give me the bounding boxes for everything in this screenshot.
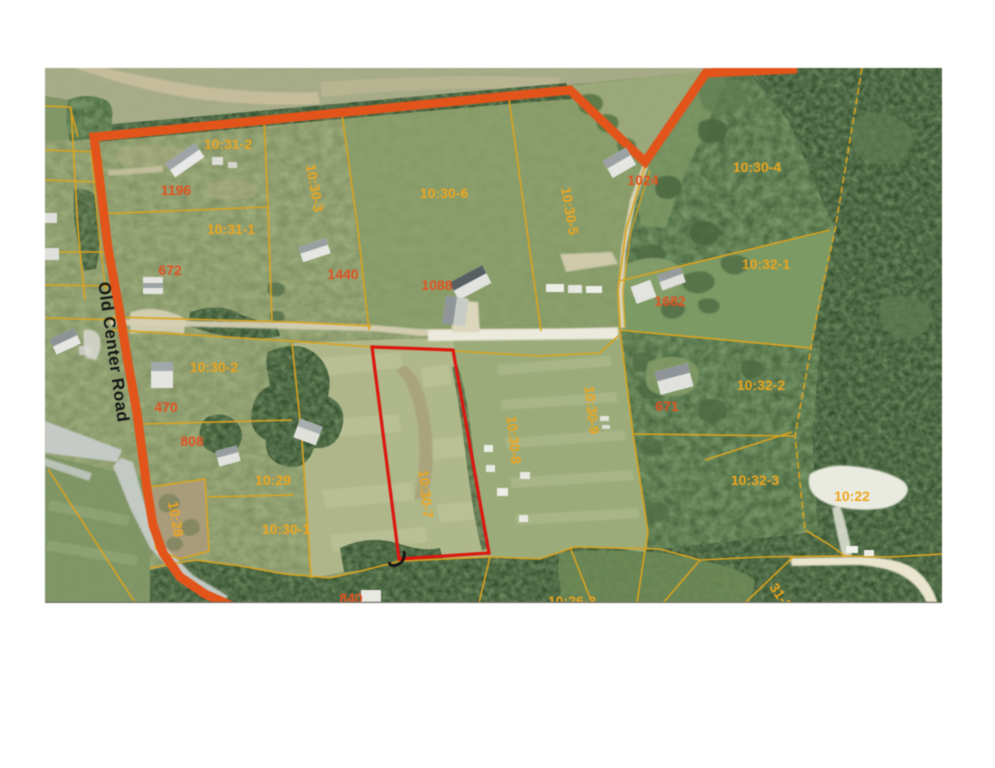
svg-text:10:29: 10:29	[255, 472, 291, 488]
svg-text:10:32-1: 10:32-1	[742, 256, 790, 272]
svg-text:672: 672	[158, 262, 182, 278]
svg-text:1088: 1088	[421, 277, 452, 293]
svg-text:1682: 1682	[654, 293, 685, 309]
svg-text:10:30-2: 10:30-2	[190, 359, 238, 375]
svg-text:10:31-2: 10:31-2	[204, 136, 252, 152]
svg-text:10:32-3: 10:32-3	[731, 472, 779, 488]
svg-text:1196: 1196	[161, 182, 192, 198]
svg-text:10:30-6: 10:30-6	[420, 185, 468, 201]
svg-text:470: 470	[154, 399, 178, 415]
svg-text:10:30-1: 10:30-1	[262, 521, 310, 537]
svg-text:10:32-2: 10:32-2	[737, 377, 785, 393]
svg-text:1440: 1440	[327, 266, 358, 282]
svg-text:808: 808	[180, 433, 204, 449]
svg-text:10:22: 10:22	[834, 488, 870, 504]
svg-text:671: 671	[655, 398, 679, 414]
svg-text:10:31-1: 10:31-1	[207, 221, 255, 237]
svg-text:1024: 1024	[627, 172, 658, 188]
svg-text:10:30-4: 10:30-4	[733, 159, 781, 175]
